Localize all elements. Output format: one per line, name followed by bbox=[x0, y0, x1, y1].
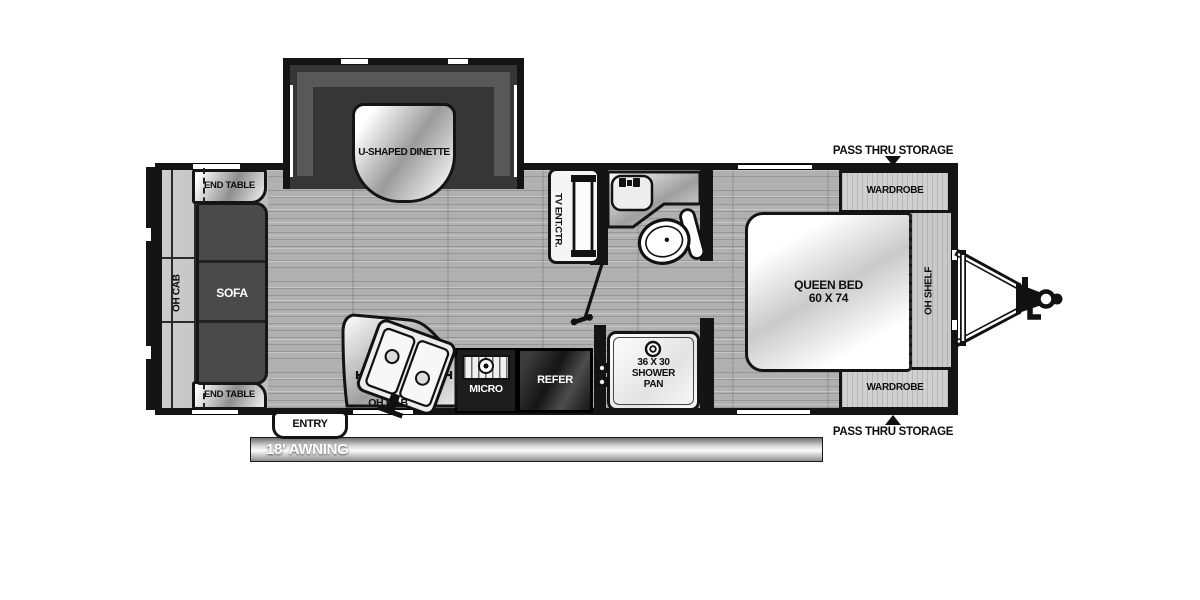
hitch-assembly bbox=[956, 250, 1063, 346]
dinette-seat-back-left bbox=[297, 72, 313, 176]
shower-label-line3: PAN bbox=[644, 380, 663, 391]
kitchen-oh-cab-label: OH CAB bbox=[352, 397, 424, 411]
queen-bed: QUEEN BED 60 X 74 bbox=[745, 212, 912, 372]
sofa-slide-wall bbox=[146, 167, 160, 410]
queen-bed-size: 60 X 74 bbox=[809, 292, 848, 305]
hitch-ball-icon bbox=[1052, 294, 1063, 305]
entry-door-tab: ENTRY bbox=[272, 411, 348, 439]
dinette-label: U-SHAPED DINETTE bbox=[358, 148, 449, 159]
dinette-table: U-SHAPED DINETTE bbox=[352, 103, 456, 203]
sofa-slide-wall-seam-bottom bbox=[146, 346, 151, 359]
awning-label: 18' AWNING bbox=[251, 441, 349, 458]
sofa-cushion-line-2 bbox=[199, 320, 265, 323]
pass-thru-storage-bottom-label: PASS THRU STORAGE bbox=[818, 426, 968, 439]
tongue-jack-icon bbox=[1030, 303, 1041, 317]
oh-cab-left-label: OH CAB bbox=[165, 254, 191, 332]
wardrobe-bottom: WARDROBE bbox=[839, 367, 951, 410]
window-bottom-bedroom bbox=[737, 409, 810, 415]
shower-label-line2: SHOWER bbox=[632, 369, 675, 380]
burner-icon bbox=[478, 358, 494, 374]
shower-pan: 36 X 30 SHOWER PAN bbox=[607, 331, 700, 411]
shower-pan-label: 36 X 30 SHOWER PAN bbox=[610, 358, 697, 390]
micro-label: MICRO bbox=[455, 383, 517, 397]
coupler-ring-icon bbox=[1039, 292, 1054, 307]
tv-center-label: TV ENT.CTR. bbox=[550, 184, 565, 256]
dinette-seat-back-right bbox=[494, 72, 510, 176]
dinette-seat-back-top bbox=[297, 72, 510, 87]
window-right-lower bbox=[951, 320, 958, 330]
dinette-window-left bbox=[290, 85, 293, 177]
shower-right-wall bbox=[700, 318, 714, 411]
oh-shelf-label: OH SHELF bbox=[921, 248, 939, 334]
dinette-window-top-2 bbox=[448, 59, 468, 64]
sofa: SOFA bbox=[196, 202, 268, 385]
end-table-bottom-label: END TABLE bbox=[204, 390, 255, 400]
refer-label: REFER bbox=[537, 375, 573, 387]
pass-thru-bottom-arrow-icon bbox=[885, 415, 901, 425]
entry-label: ENTRY bbox=[292, 419, 327, 431]
awning-bar: 18' AWNING bbox=[250, 437, 823, 462]
refrigerator: REFER bbox=[517, 348, 593, 413]
end-table-top-label: END TABLE bbox=[204, 181, 255, 191]
floorplan-canvas: OH CAB END TABLE END TABLE SOFA U-SHAPED… bbox=[0, 0, 1200, 600]
microwave-box bbox=[455, 348, 517, 413]
wardrobe-top: WARDROBE bbox=[839, 170, 951, 213]
sofa-label: SOFA bbox=[216, 287, 247, 300]
wardrobe-top-label: WARDROBE bbox=[866, 186, 923, 197]
wardrobe-bottom-label: WARDROBE bbox=[866, 383, 923, 394]
dinette-window-right bbox=[514, 85, 517, 177]
dinette-window-top-1 bbox=[341, 59, 368, 64]
shower-left-wall bbox=[594, 325, 606, 412]
window-top-bedroom bbox=[738, 164, 812, 170]
sofa-cushion-line-1 bbox=[199, 260, 265, 263]
window-right-upper bbox=[951, 250, 958, 260]
sofa-slide-wall-seam-top bbox=[146, 228, 151, 241]
bathroom-right-wall bbox=[700, 166, 713, 261]
bed-head-dashed-line bbox=[909, 214, 912, 370]
pass-thru-storage-top-label: PASS THRU STORAGE bbox=[818, 145, 968, 158]
